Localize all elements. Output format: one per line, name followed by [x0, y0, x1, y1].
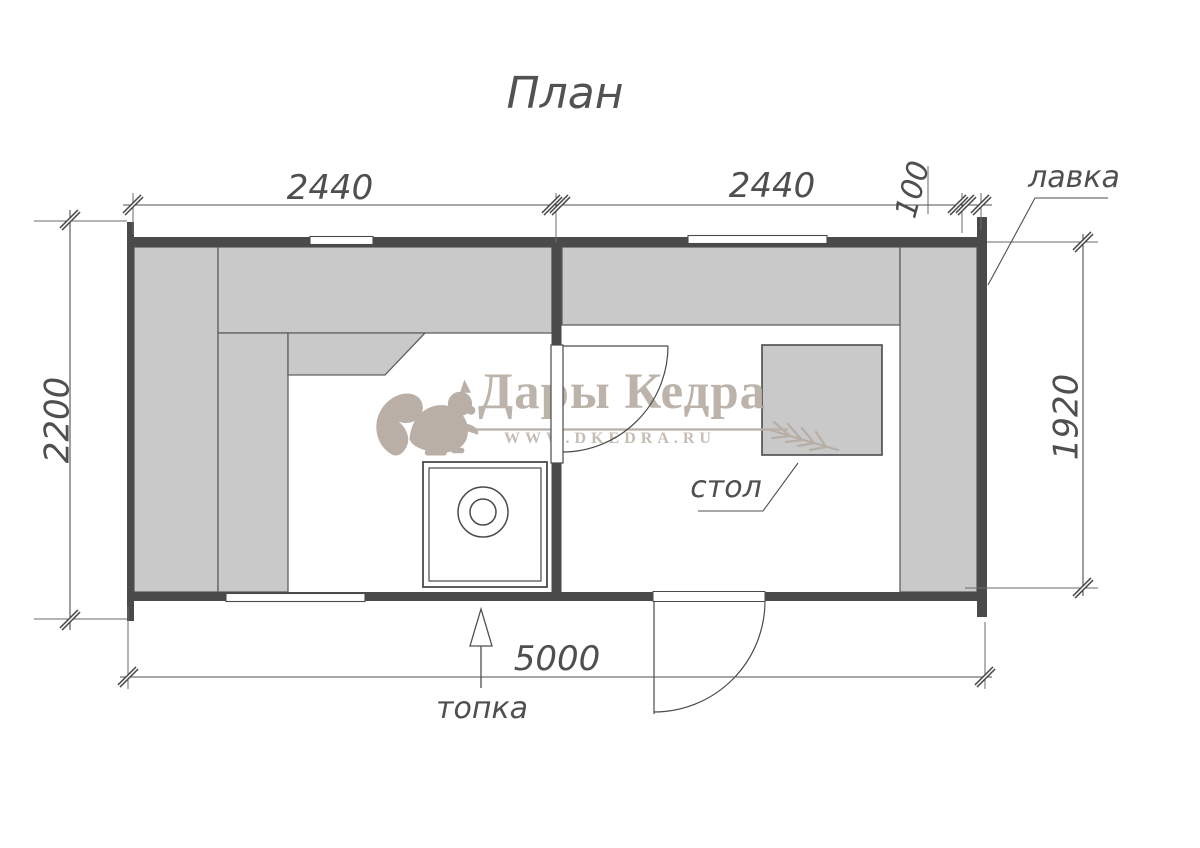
partition-wall-upper: [552, 247, 562, 345]
dim-room-right-height: 1920: [1047, 350, 1087, 485]
window-bottom-left: [226, 594, 365, 602]
partition-wall-lower: [552, 463, 562, 592]
label-firebox: топка: [412, 691, 552, 726]
wall-bottom-right: [765, 592, 977, 601]
stove: [423, 462, 547, 587]
plan-linework-layer: [0, 0, 1200, 848]
label-table: стол: [666, 470, 786, 505]
dimension-lines: [70, 205, 1083, 677]
dim-room-left-width: 2440: [255, 168, 405, 208]
dim-room-right-width: 2440: [697, 166, 847, 206]
dim-length-overall: 5000: [482, 639, 632, 679]
page-title: План: [460, 68, 670, 119]
door-exterior: [653, 592, 765, 715]
floor-plan-canvas: Дары Кедра WWW.DKEDRA.RU: [0, 0, 1200, 848]
window-top-left: [310, 237, 373, 245]
window-top-right: [688, 236, 827, 244]
door-interior: [551, 345, 668, 463]
wall-bottom-left: [134, 592, 653, 601]
label-bench: лавка: [1014, 160, 1134, 195]
wall-left: [127, 222, 134, 621]
dimension-ticks: [61, 196, 1092, 686]
dim-height-overall: 2200: [38, 353, 78, 488]
wall-right: [977, 217, 987, 617]
